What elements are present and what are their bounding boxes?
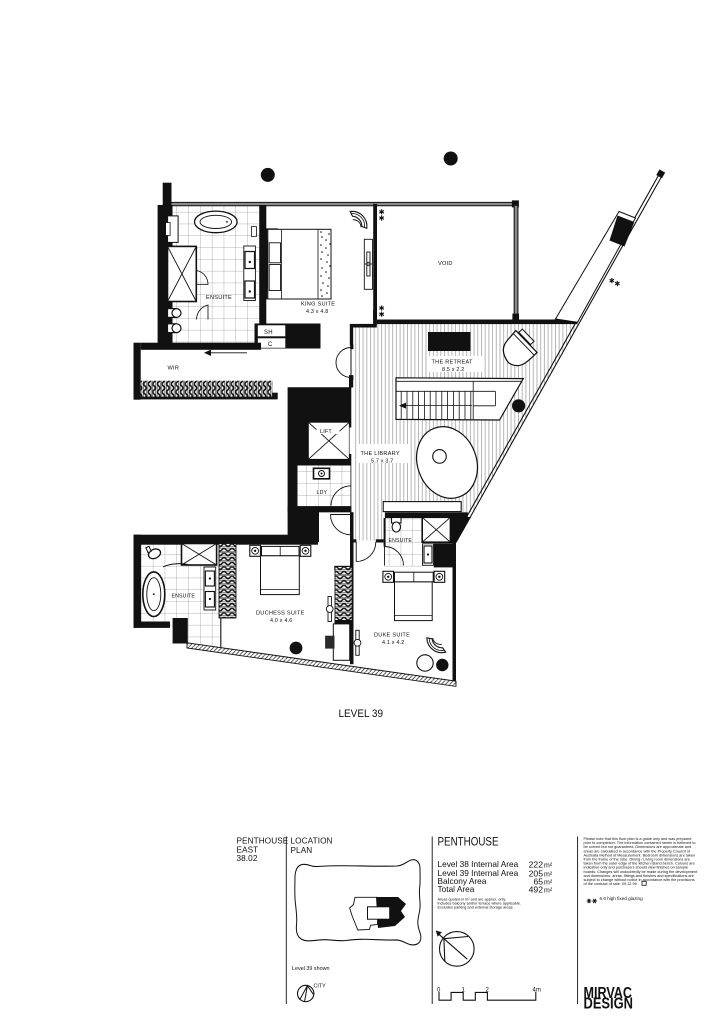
svg-text:4.1 x 4.2: 4.1 x 4.2: [382, 640, 404, 646]
svg-text:VOID: VOID: [438, 261, 453, 267]
svg-text:C: C: [268, 342, 273, 348]
svg-text:DUCHESS SUITE: DUCHESS SUITE: [256, 611, 305, 617]
svg-text:8.5 x 2.2: 8.5 x 2.2: [442, 367, 464, 373]
svg-text:m²: m²: [544, 880, 553, 887]
svg-text:PENTHOUSE: PENTHOUSE: [237, 837, 289, 846]
svg-text:5.7 x 3.7: 5.7 x 3.7: [371, 459, 393, 465]
svg-text:LEVEL 39: LEVEL 39: [339, 708, 384, 720]
svg-text:Excludes parking and external: Excludes parking and external storage ar…: [438, 906, 514, 910]
svg-text:4.0 x 4.6: 4.0 x 4.6: [270, 618, 292, 624]
svg-text:DESIGN: DESIGN: [584, 996, 634, 1013]
svg-text:SH: SH: [264, 330, 273, 336]
svg-text:of the contract of sale. 09.12: of the contract of sale. 09.12.99: [584, 882, 637, 886]
svg-text:38.02: 38.02: [237, 854, 258, 863]
svg-text:492: 492: [529, 885, 544, 895]
svg-text:ENSUITE: ENSUITE: [172, 594, 196, 600]
svg-text:LDY: LDY: [317, 490, 328, 496]
svg-text:m²: m²: [544, 871, 553, 878]
svg-text:Total Area: Total Area: [438, 884, 475, 894]
svg-text:KING SUITE: KING SUITE: [301, 302, 335, 308]
svg-text:ENSUITE: ENSUITE: [206, 295, 232, 301]
svg-text:DUKE SUITE: DUKE SUITE: [374, 633, 410, 639]
svg-text:6.6 high fixed glazing: 6.6 high fixed glazing: [600, 896, 644, 901]
svg-text:m²: m²: [544, 888, 553, 895]
svg-text:THE RETREAT: THE RETREAT: [432, 360, 474, 366]
svg-text:THE LIBRARY: THE LIBRARY: [361, 451, 400, 457]
svg-text:4m: 4m: [533, 988, 541, 994]
svg-text:WIR: WIR: [168, 366, 180, 372]
svg-text:PLAN: PLAN: [291, 846, 313, 855]
svg-text:4.3 x 4.8: 4.3 x 4.8: [306, 309, 328, 315]
svg-text:PENTHOUSE: PENTHOUSE: [438, 837, 499, 849]
svg-text:Level 39 shown: Level 39 shown: [292, 966, 329, 972]
svg-text:LOCATION: LOCATION: [291, 837, 333, 846]
svg-text:ENSUITE: ENSUITE: [389, 538, 413, 544]
svg-text:CITY: CITY: [314, 984, 327, 990]
svg-text:m²: m²: [544, 863, 553, 870]
svg-text:LIFT: LIFT: [320, 429, 332, 435]
